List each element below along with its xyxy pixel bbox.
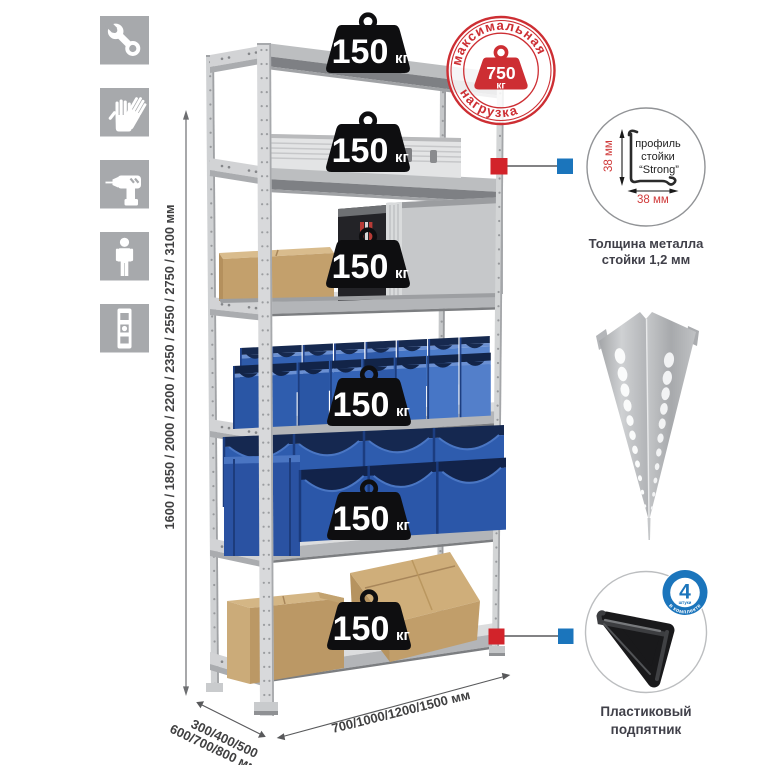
svg-text:штуки: штуки [679, 600, 692, 605]
svg-text:кг: кг [396, 627, 410, 644]
svg-text:150: 150 [333, 610, 390, 648]
svg-text:кг: кг [395, 149, 409, 166]
svg-text:1600 / 1850 / 2000 / 2200 / 23: 1600 / 1850 / 2000 / 2200 / 2350 / 2550 … [162, 205, 177, 530]
svg-text:кг: кг [396, 517, 410, 534]
svg-text:кг: кг [395, 50, 409, 67]
svg-text:подпятник: подпятник [611, 722, 682, 737]
svg-text:150: 150 [333, 386, 390, 424]
svg-text:38 мм: 38 мм [603, 140, 615, 172]
svg-text:стойки: стойки [641, 151, 675, 163]
svg-text:150: 150 [333, 500, 390, 538]
svg-text:Пластиковый: Пластиковый [600, 704, 691, 719]
svg-text:кг: кг [496, 81, 505, 92]
svg-text:кг: кг [395, 265, 409, 282]
svg-text:150: 150 [332, 33, 389, 71]
svg-text:“Strong”: “Strong” [639, 164, 679, 176]
svg-text:150: 150 [332, 248, 389, 286]
svg-text:150: 150 [332, 132, 389, 170]
svg-text:стойки 1,2 мм: стойки 1,2 мм [602, 252, 690, 267]
svg-text:профиль: профиль [635, 138, 681, 150]
svg-text:38 мм: 38 мм [637, 194, 669, 206]
svg-text:Толщина металла: Толщина металла [589, 236, 704, 251]
svg-text:кг: кг [396, 403, 410, 420]
